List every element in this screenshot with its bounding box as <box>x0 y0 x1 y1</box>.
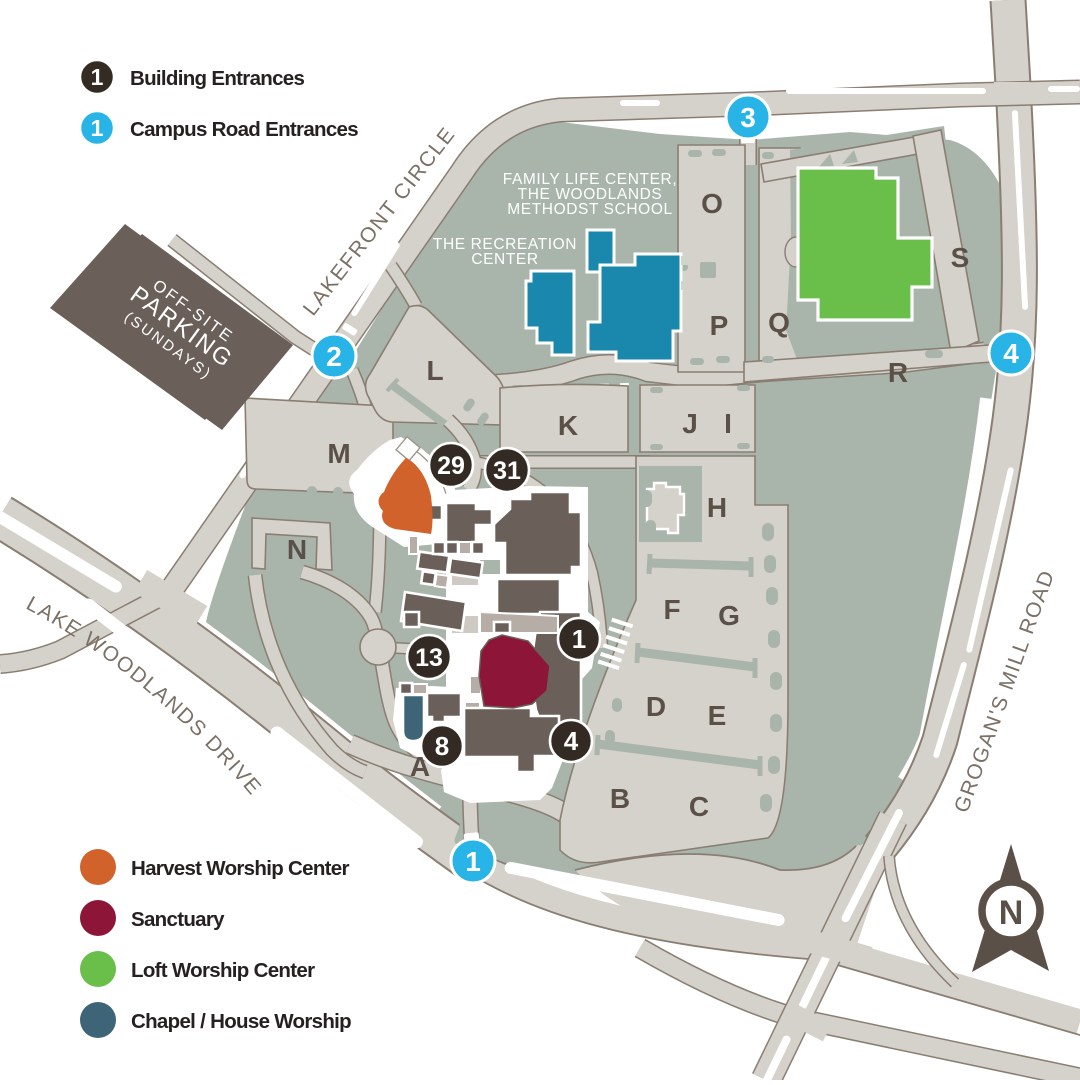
svg-text:I: I <box>724 408 732 439</box>
svg-text:METHODST SCHOOL: METHODST SCHOOL <box>507 201 672 218</box>
svg-text:4: 4 <box>564 726 579 756</box>
svg-text:29: 29 <box>437 452 465 480</box>
svg-text:4: 4 <box>1003 338 1019 369</box>
svg-text:R: R <box>888 357 908 388</box>
svg-text:F: F <box>663 594 680 625</box>
svg-text:Harvest Worship Center: Harvest Worship Center <box>131 857 349 880</box>
svg-text:Chapel / House Worship: Chapel / House Worship <box>131 1010 351 1033</box>
svg-text:Sanctuary: Sanctuary <box>131 908 225 931</box>
svg-text:J: J <box>682 408 698 439</box>
svg-text:N: N <box>999 894 1024 932</box>
svg-text:N: N <box>287 534 307 565</box>
svg-text:L: L <box>426 355 443 386</box>
svg-text:2: 2 <box>326 341 342 372</box>
svg-text:E: E <box>708 700 727 731</box>
svg-text:1: 1 <box>572 624 586 654</box>
svg-text:D: D <box>646 691 666 722</box>
svg-text:P: P <box>710 310 729 341</box>
svg-text:C: C <box>689 791 709 822</box>
svg-text:1: 1 <box>91 115 104 141</box>
svg-text:31: 31 <box>493 457 521 485</box>
svg-text:1: 1 <box>91 64 104 90</box>
svg-text:Campus Road Entrances: Campus Road Entrances <box>130 118 358 141</box>
svg-text:H: H <box>707 492 727 523</box>
svg-text:O: O <box>701 188 723 219</box>
svg-text:S: S <box>951 242 970 273</box>
svg-text:Q: Q <box>768 307 790 338</box>
svg-text:B: B <box>610 783 630 814</box>
svg-text:8: 8 <box>435 731 449 761</box>
svg-text:G: G <box>718 600 740 631</box>
svg-text:13: 13 <box>415 644 443 672</box>
svg-text:M: M <box>327 438 350 469</box>
svg-text:Building Entrances: Building Entrances <box>130 67 305 90</box>
svg-text:1: 1 <box>465 846 481 877</box>
svg-text:K: K <box>558 410 578 441</box>
svg-text:CENTER: CENTER <box>471 251 538 268</box>
svg-text:3: 3 <box>740 102 756 133</box>
svg-text:Loft Worship Center: Loft Worship Center <box>131 959 315 982</box>
